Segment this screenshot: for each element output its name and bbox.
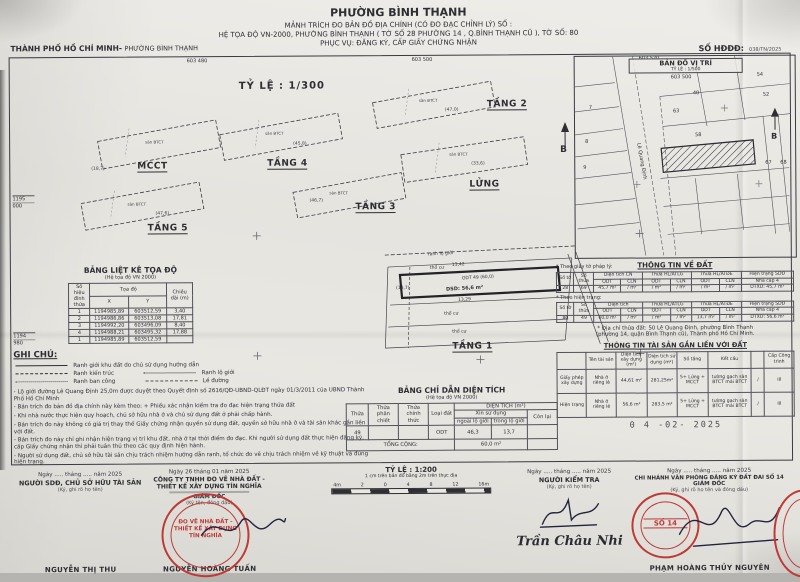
col-header: Tọa độ bbox=[90, 283, 167, 296]
coordinate-table-block: BẢNG LIỆT KÊ TỌA ĐỘ (Hệ tọa độ VN 2000) … bbox=[68, 265, 193, 344]
table-cell bbox=[399, 426, 429, 440]
col-header: Chiều dài (m) bbox=[167, 283, 193, 308]
parcel-number: 68 bbox=[780, 160, 786, 166]
col-header: ngoài lộ giới bbox=[455, 418, 491, 426]
sig-name: PHẠM HOÀNG THỦY NGUYÊN bbox=[630, 564, 790, 573]
table-cell: 5+ Lửng + MCCT bbox=[677, 392, 708, 416]
floor-note: sàn BTCT bbox=[127, 202, 146, 207]
ward-label: PHƯỜNG BÌNH THẠNH bbox=[124, 44, 198, 52]
table-cell: 69 bbox=[574, 286, 594, 293]
signature-inspector: Ngày ..... tháng ..... năm 2025 NGƯỜI KI… bbox=[513, 469, 625, 550]
floor-label-tang4: TẦNG 4 bbox=[267, 159, 307, 170]
col-header: Thửa phân chiết bbox=[368, 404, 398, 426]
floor-label-tang1: TẦNG 1 bbox=[452, 341, 492, 352]
scale-tick: 4 bbox=[407, 483, 410, 488]
col-header: Thửa bbox=[346, 404, 368, 426]
taisan-title: THÔNG TIN TÀI SẢN GẮN LIỀN VỚI ĐẤT bbox=[556, 340, 794, 349]
signature-registry: Ngày ..... tháng ..... năm 2025 CHI NHÁN… bbox=[629, 468, 789, 494]
scale-tick: 8 bbox=[429, 483, 432, 488]
table-cell: 80 bbox=[557, 315, 575, 322]
legend-label: Ranh lộ giới bbox=[202, 370, 235, 376]
header-line3: PHỤC VỤ: ĐĂNG KÝ, CẤP GIẤY CHỨNG NHẬN bbox=[158, 38, 638, 49]
table-cell: 281,25m² bbox=[647, 369, 678, 393]
floor-note: sàn BTCT bbox=[329, 190, 348, 195]
sig-date: Ngày ..... tháng ..... năm 2025 bbox=[629, 468, 789, 475]
note-line: - Bản trích đo này không có giá trị thay… bbox=[14, 420, 374, 435]
page-title: PHƯỜNG BÌNH THẠNH bbox=[158, 5, 638, 21]
so-hddd-label: SỐ HĐĐĐ: bbox=[699, 44, 744, 53]
dim-bot: 13,29 bbox=[458, 297, 471, 303]
scale-tick: 2 bbox=[361, 483, 364, 488]
table-cell: / m² bbox=[621, 285, 643, 292]
table-cell: 13,7 bbox=[491, 425, 527, 439]
table-cell: III bbox=[764, 368, 794, 392]
col-header: Y bbox=[128, 295, 167, 308]
table-cell: / m² bbox=[719, 285, 741, 292]
table-cell: 56,6 m² bbox=[616, 393, 647, 417]
floor-note: sàn BTCT bbox=[145, 139, 164, 144]
inspector-script-name: Trần Châu Nhi bbox=[514, 534, 626, 550]
table-cell: / bbox=[752, 392, 765, 416]
left-area: (18,7) bbox=[396, 286, 410, 291]
header-left: THÀNH PHỐ HỒ CHÍ MINH- PHƯỜNG BÌNH THẠNH bbox=[11, 43, 198, 53]
sig-name: NGUYỄN THỊ THU bbox=[16, 566, 146, 575]
legend-row: Ranh ban công Lề đường bbox=[16, 376, 374, 386]
parcel-number: 8 bbox=[585, 139, 588, 145]
sig-date: Ngày ..... tháng ..... năm 2025 bbox=[513, 469, 625, 476]
table-cell: / m² bbox=[643, 285, 670, 292]
note-line: - Bản trích đo này chỉ ghi nhận hiện trạ… bbox=[14, 435, 374, 450]
col-header: Số hiệu đỉnh thửa bbox=[68, 283, 90, 308]
table-cell: / bbox=[751, 368, 764, 392]
sig-note: (Ký, ghi rõ họ tên) bbox=[513, 484, 625, 491]
legend: Ranh giới khu đất do chủ sử dụng hướng d… bbox=[15, 360, 373, 386]
total-value: 60,0 m² bbox=[455, 439, 527, 450]
col-header: trong lộ giới bbox=[491, 418, 527, 426]
table-cell: 44,61 m² bbox=[616, 369, 647, 393]
floor-label-tang5: TẦNG 5 bbox=[148, 223, 188, 234]
dat-current-table: Số tờ Số thửa Diện tích Thửa HL/ATLG Thử… bbox=[556, 300, 794, 322]
col-header: X bbox=[90, 296, 129, 309]
table-cell bbox=[527, 439, 557, 450]
scale-tick: 0 bbox=[384, 483, 387, 488]
table-cell: III bbox=[765, 392, 795, 416]
parcel-number: 63 bbox=[673, 108, 679, 114]
city-label: THÀNH PHỐ HỒ CHÍ MINH- bbox=[11, 44, 123, 54]
table-cell bbox=[527, 425, 557, 439]
tho-cu-label: thổ cư bbox=[430, 266, 444, 271]
table-cell: 49 bbox=[574, 315, 594, 322]
scale-bar bbox=[331, 487, 491, 494]
registry-signature bbox=[673, 494, 783, 551]
table-cell: 45,7 m² bbox=[594, 285, 621, 292]
sig-note: (Ký, ghi rõ họ tên và đóng dấu) bbox=[629, 487, 789, 494]
table-cell: Nhà ở riêng lẻ bbox=[586, 369, 616, 393]
floor-area: (46,7) bbox=[309, 198, 323, 203]
parcel-number: 9 bbox=[583, 165, 586, 171]
col-header: Số tờ bbox=[556, 272, 574, 285]
col-header: Số thửa bbox=[574, 272, 594, 285]
table-cell: / m² bbox=[621, 315, 643, 322]
tho-cu-label: thổ cư bbox=[452, 330, 466, 335]
table-cell: 13,7 m² bbox=[692, 315, 719, 322]
inset-scale: TỶ LỆ : 1/500 bbox=[630, 67, 742, 73]
table-cell: / m² bbox=[670, 315, 692, 322]
signature-owner: Ngày ..... tháng ..... năm 2025 NGƯỜI SD… bbox=[15, 472, 145, 494]
table-cell: tường gạch sàn BTCT mái BTCT bbox=[708, 392, 752, 416]
dientich-subtitle: (Hệ tọa độ VN 2000) bbox=[346, 394, 558, 401]
floor-area: (18,7) bbox=[91, 167, 105, 172]
scale-bar-block: TỶ LỆ : 1:200 1 cm trên bản đồ bằng 2m t… bbox=[331, 465, 491, 494]
table-cell: ODT bbox=[429, 425, 455, 439]
table-cell bbox=[167, 336, 193, 343]
floor-label-tang3: TẦNG 3 bbox=[355, 202, 395, 213]
sig-note: (Ký, ghi rõ họ tên) bbox=[15, 487, 145, 494]
sig-date: Ngày 26 tháng 01 năm 2025 bbox=[151, 469, 267, 476]
dim-top: 13,42 bbox=[452, 262, 465, 268]
table-cell: 5+ Lửng + MCCT bbox=[677, 368, 708, 392]
toado-title: BẢNG LIỆT KÊ TỌA ĐỘ bbox=[68, 265, 193, 275]
location-map: BẢN ĐỒ VỊ TRÍ TỶ LỆ : 1/500 603 500 B Lê… bbox=[574, 55, 797, 259]
land-info-block: * Theo giấy tờ pháp lý: THÔNG TIN VỀ ĐẤT… bbox=[556, 261, 795, 431]
legal-note: * Theo giấy tờ pháp lý: bbox=[556, 264, 613, 270]
legend-label: Ranh giới khu đất do chủ sử dụng hướng d… bbox=[73, 362, 199, 369]
note-line: - Bản trích đo bản đồ địa chính này kèm … bbox=[14, 403, 374, 412]
scale-tick: 12 bbox=[452, 483, 458, 488]
table-cell: 46,3 bbox=[455, 425, 491, 439]
table-cell: 603512,59 bbox=[128, 308, 167, 315]
legend-dashed-line bbox=[16, 373, 68, 374]
table-cell: 60,0 m² bbox=[594, 315, 621, 322]
table-cell: 1194988,21 bbox=[90, 329, 129, 336]
document: PHƯỜNG BÌNH THẠNH MẢNH TRÍCH ĐO BẢN ĐỒ Đ… bbox=[0, 0, 800, 575]
legend-solid-line bbox=[15, 365, 67, 366]
col-header: Thửa chính thức bbox=[398, 403, 428, 425]
table-cell: 283,5 m² bbox=[647, 393, 678, 417]
table-cell: 49 bbox=[346, 426, 368, 440]
notes-block: GHI CHÚ: Ranh giới khu đất do chủ sử dụn… bbox=[13, 348, 374, 468]
floor-area: (33,6) bbox=[471, 161, 485, 166]
director-signature bbox=[197, 509, 287, 550]
parcel-number: 40 bbox=[693, 90, 699, 96]
legend-label: Ranh kiến trúc bbox=[73, 371, 114, 377]
legend-dotted-line-2 bbox=[16, 381, 68, 382]
inset-title-box: BẢN ĐỒ VỊ TRÍ TỶ LỆ : 1/500 bbox=[629, 58, 743, 74]
parcel-number: 52 bbox=[763, 92, 769, 98]
inspector-signature bbox=[534, 494, 604, 530]
table-cell: 28 bbox=[556, 286, 574, 293]
legend-dash-line-2 bbox=[145, 380, 197, 381]
col-header: Loại đất bbox=[429, 403, 455, 425]
company-name-2: THIẾT KẾ XÂY DỰNG TÍN NGHĨA bbox=[151, 483, 267, 491]
taisan-table: Tên tài sản Diện tích xây dựng (m²) Diện… bbox=[556, 350, 794, 418]
table-cell: 1194985,89 bbox=[90, 308, 129, 315]
parcel-number: 67 bbox=[765, 160, 771, 166]
parcel-number: 58 bbox=[695, 132, 701, 138]
legend-label: Ranh ban công bbox=[73, 379, 115, 385]
table-cell: DTXD: 45,7 m² bbox=[741, 284, 794, 291]
scale-tick: 16m bbox=[478, 482, 489, 487]
table-cell: 1 bbox=[69, 336, 90, 343]
floor-label-lung: LỬNG bbox=[469, 179, 499, 190]
inset-coord: 603 500 bbox=[671, 74, 692, 80]
tho-cu-label: thổ cư bbox=[444, 312, 458, 317]
col-header: Còn lại bbox=[527, 410, 557, 425]
area-table-block: BẢNG CHỈ DẪN DIỆN TÍCH (Hệ tọa độ VN 200… bbox=[346, 385, 558, 452]
parcel-address-2: (phường 14, quận Bình Thạnh cũ), Thành p… bbox=[556, 330, 794, 337]
floor-area: (45,8) bbox=[293, 142, 307, 147]
floor-label-tang2: TẦNG 2 bbox=[487, 99, 527, 110]
legend-label: Lề đường bbox=[203, 378, 229, 384]
table-cell: 1194986,86 bbox=[90, 315, 129, 322]
table-cell: tường gạch sàn BTCT mái BTCT bbox=[708, 368, 752, 392]
document-header: PHƯỜNG BÌNH THẠNH MẢNH TRÍCH ĐO BẢN ĐỒ Đ… bbox=[158, 5, 638, 49]
legend-dotted-line bbox=[144, 372, 196, 373]
floor-note: sàn BTCT bbox=[419, 98, 438, 103]
table-cell: / m² bbox=[719, 314, 741, 321]
col-header bbox=[557, 352, 587, 369]
note-line: - Khi nhà nước thực hiện quy hoạch, chủ … bbox=[14, 411, 374, 420]
table-cell: / m² bbox=[643, 315, 670, 322]
table-cell: / m² bbox=[692, 285, 719, 292]
table-cell: DTXD: 56,6 m² bbox=[741, 314, 794, 321]
dat-legal-table: Số tờ Số thửa Diện tích CN Thửa HL/ATLG … bbox=[556, 271, 794, 293]
table-cell: 1194985,89 bbox=[90, 336, 129, 343]
table-cell: 603513,08 bbox=[129, 315, 168, 322]
table-cell: Nhà ở riêng lẻ bbox=[587, 393, 617, 417]
total-label: TỔNG CỘNG: bbox=[346, 439, 455, 451]
parcel-number: 54 bbox=[757, 72, 763, 78]
note-line: - Người sử dụng đất, chủ sở hữu tài sản … bbox=[14, 451, 374, 466]
floor-area: (47,0) bbox=[445, 108, 459, 113]
toado-table: Số hiệu đỉnh thửa Tọa độ Chiều dài (m) X… bbox=[68, 282, 193, 344]
parcel-number: 7 bbox=[589, 105, 592, 111]
dientich-table: Thửa Thửa phân chiết Thửa chính thức Loạ… bbox=[346, 402, 558, 452]
inset-north-label: B bbox=[771, 132, 777, 141]
sig-date: Ngày ..... tháng ..... năm 2025 bbox=[15, 472, 145, 479]
ghichu-title: GHI CHÚ: bbox=[13, 348, 373, 360]
date-received-stamp: 0 4 -02- 2025 bbox=[557, 419, 795, 430]
toado-subtitle: (Hệ tọa độ VN 2000) bbox=[68, 274, 193, 281]
edge-stamp-inner-ring bbox=[782, 498, 800, 568]
floor-area: (47,6) bbox=[156, 211, 170, 216]
floor-label-mcct: MCCT bbox=[137, 161, 167, 172]
table-cell: 603496,09 bbox=[129, 322, 168, 329]
table-cell: 603495,32 bbox=[129, 329, 168, 336]
floor-note: sàn BTCT bbox=[449, 152, 468, 157]
table-cell: Hiện trạng bbox=[557, 393, 587, 417]
table-cell: / m² bbox=[670, 285, 692, 292]
table-cell bbox=[368, 426, 398, 440]
note-line: - Lộ giới đường Lê Quang Định 25,0m được… bbox=[14, 387, 374, 402]
north-label: B bbox=[560, 145, 567, 155]
notes-list: - Lộ giới đường Lê Quang Định 25,0m được… bbox=[14, 387, 374, 466]
table-cell: 1194992,20 bbox=[90, 322, 129, 329]
table-cell: 603512,59 bbox=[129, 336, 168, 343]
scale-tick: 4m bbox=[333, 483, 341, 488]
scale200-sub: 1 cm trên bản đồ bằng 2m trên thực địa bbox=[331, 473, 491, 479]
table-cell: Giấy phép xây dựng bbox=[557, 369, 587, 393]
floor-note: sàn BTCT bbox=[265, 131, 284, 136]
